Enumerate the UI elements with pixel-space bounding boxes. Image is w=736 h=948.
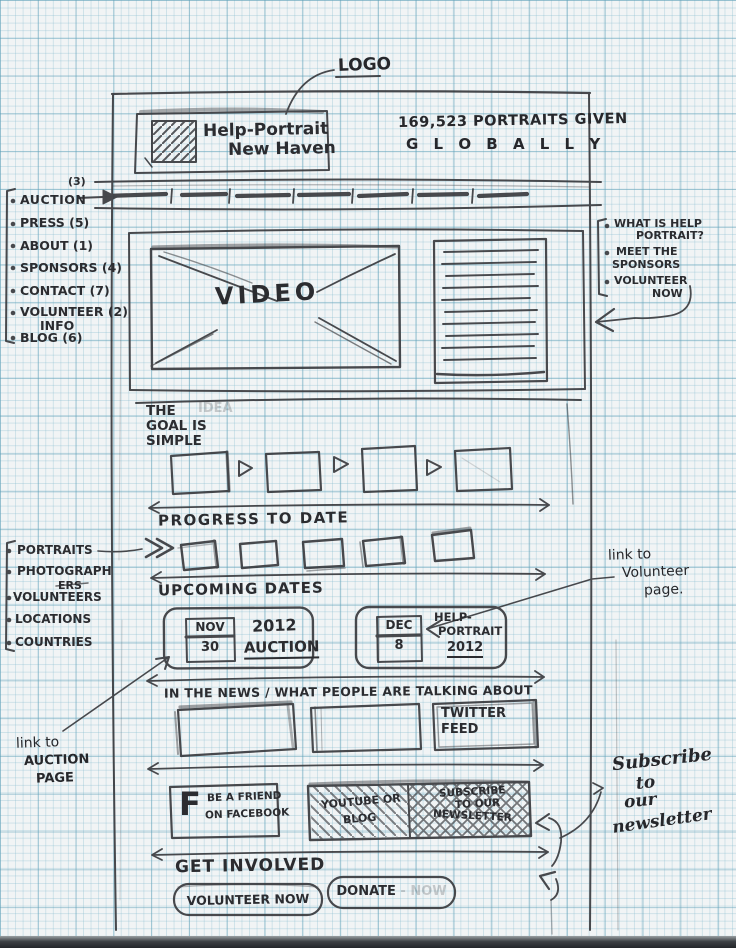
stat-note-locations: LOCATIONS bbox=[15, 613, 91, 626]
nav-note-number: (1) bbox=[73, 238, 93, 253]
portraits-stat-line2: G L O B A L L Y bbox=[406, 136, 605, 153]
nav-note-about: ABOUT (1) bbox=[20, 239, 93, 253]
logo-annotation-label: LOGO bbox=[338, 55, 392, 76]
auction-link-note-2: AUCTION bbox=[24, 753, 90, 770]
nav-note-label: AUCTION bbox=[20, 192, 86, 207]
logo-annotation-leader bbox=[286, 70, 380, 114]
facebook-label-2: ON FACEBOOK bbox=[205, 808, 290, 822]
nav-note-press: PRESS (5) bbox=[20, 216, 89, 230]
sidebar-note-what-is-2: PORTRAIT? bbox=[636, 230, 704, 242]
youtube-blog-label-2: BLOG bbox=[343, 812, 377, 827]
nav-note-label: ABOUT bbox=[20, 238, 69, 253]
nav-note-number: (4) bbox=[102, 260, 122, 275]
nav-note-label: SPONSORS bbox=[20, 260, 98, 275]
event2-title-line2: PORTRAIT bbox=[438, 625, 502, 638]
logo-text-line2: New Haven bbox=[228, 139, 336, 160]
nav-note-blog: BLOG (6) bbox=[20, 331, 82, 345]
goal-heading-line1: THE bbox=[146, 404, 176, 419]
scan-bottom-edge bbox=[0, 936, 736, 948]
event1-title-line2: AUCTION bbox=[244, 638, 320, 659]
news-heading: IN THE NEWS / WHAT PEOPLE ARE TALKING AB… bbox=[164, 683, 533, 700]
sidebar-note-volunteer: VOLUNTEER bbox=[614, 275, 687, 287]
twitter-feed-label-1: TWITTER bbox=[441, 707, 506, 721]
donate-label: DONATE bbox=[336, 884, 396, 899]
stat-note-portraits: PORTRAITS bbox=[17, 544, 93, 557]
get-involved-heading: GET INVOLVED bbox=[175, 856, 326, 877]
upcoming-heading: UPCOMING DATES bbox=[158, 580, 324, 599]
auction-link-note-1: link to bbox=[16, 735, 60, 752]
event1-calendar-day: 30 bbox=[190, 641, 230, 655]
stat-note-countries: COUNTRIES bbox=[15, 636, 93, 649]
event2-title-line1: HELP- bbox=[434, 611, 472, 624]
nav-note-auction: AUCTION bbox=[20, 193, 86, 207]
flow-arrow-triangle bbox=[427, 460, 441, 475]
donate-ghost-label: - NOW bbox=[400, 884, 446, 899]
twitter-feed-label-2: FEED bbox=[441, 723, 478, 737]
auction-link-note-3: PAGE bbox=[36, 771, 74, 787]
facebook-label-1: BE A FRIEND bbox=[207, 791, 282, 805]
sidebar-note-volunteer-2: NOW bbox=[652, 288, 683, 300]
event1-title-line1: 2012 bbox=[252, 616, 297, 635]
nav-note-sponsors: SPONSORS (4) bbox=[20, 261, 122, 275]
video-section-frame bbox=[129, 229, 585, 391]
volunteer-link-note-2: Volunteer bbox=[622, 564, 690, 582]
event2-calendar-day: 8 bbox=[379, 639, 419, 653]
newsletter-note-3: our bbox=[623, 790, 657, 812]
nav-note-label: CONTACT bbox=[20, 283, 85, 298]
newsletter-hook-arrowhead bbox=[536, 814, 549, 830]
nav-bar-sketch bbox=[95, 180, 601, 210]
volunteer-now-button: VOLUNTEER NOW bbox=[174, 891, 322, 909]
facebook-icon: F bbox=[179, 787, 201, 822]
goal-heading-line2: GOAL IS bbox=[146, 419, 207, 434]
nav-note-number: (7) bbox=[90, 283, 110, 298]
youtube-blog-label-1: YOUTUBE OR bbox=[321, 793, 402, 812]
volunteer-link-note-3: page. bbox=[644, 582, 684, 599]
margin-brackets bbox=[6, 189, 691, 651]
volunteer-link-note-1: link to bbox=[608, 547, 652, 564]
flow-arrow-triangle bbox=[334, 457, 348, 472]
return-arrowhead bbox=[540, 872, 555, 889]
flow-arrow-triangle bbox=[239, 461, 252, 476]
event2-title-line3: 2012 bbox=[447, 641, 483, 658]
event2-calendar-month: DEC bbox=[379, 619, 419, 632]
progress-section-sketch bbox=[98, 528, 545, 583]
newsletter-note-leader bbox=[560, 792, 601, 838]
video-placeholder-label: VIDEO bbox=[214, 278, 319, 310]
newsletter-label-3: NEWSLETTER bbox=[433, 809, 512, 825]
nav-note-auction-number: (3) bbox=[68, 176, 86, 188]
goal-ghost-text: IDEA bbox=[198, 402, 233, 416]
donate-now-button: DONATE - NOW bbox=[328, 884, 455, 899]
graph-paper-sheet: LOGO Help-Portrait New Haven 169,523 POR… bbox=[0, 0, 736, 948]
nav-note-label: BLOG bbox=[20, 330, 58, 345]
nav-note-volunteer-info: VOLUNTEER (2) bbox=[20, 305, 128, 319]
sidebar-note-meet: MEET THE bbox=[616, 246, 678, 258]
auction-link-arrowhead bbox=[156, 657, 169, 669]
newsletter-note-1: Subscribe bbox=[611, 745, 713, 775]
nav-note-number: (5) bbox=[69, 215, 89, 230]
auction-link-leader bbox=[63, 657, 169, 731]
portraits-stat-line1: 169,523 PORTRAITS GIVEN bbox=[398, 112, 628, 132]
nav-note-number: (6) bbox=[62, 330, 82, 345]
progress-heading: PROGRESS TO DATE bbox=[158, 509, 349, 529]
sidebar-note-meet-2: SPONSORS bbox=[612, 259, 680, 271]
goal-heading-line3: SIMPLE bbox=[146, 434, 202, 449]
upcoming-dates-sketch bbox=[63, 577, 614, 731]
stat-note-volunteers: VOLUNTEERS bbox=[13, 591, 102, 604]
nav-note-number: (2) bbox=[108, 304, 128, 319]
nav-note-label: PRESS bbox=[20, 215, 65, 230]
nav-note-label: VOLUNTEER bbox=[20, 304, 103, 319]
text-list-panel-sketch bbox=[434, 239, 547, 383]
event1-calendar-month: NOV bbox=[190, 621, 230, 634]
chevron-right-icon bbox=[146, 539, 173, 557]
stat-note-photographers: PHOTOGRAPH bbox=[17, 565, 112, 578]
nav-note-contact: CONTACT (7) bbox=[20, 284, 110, 298]
